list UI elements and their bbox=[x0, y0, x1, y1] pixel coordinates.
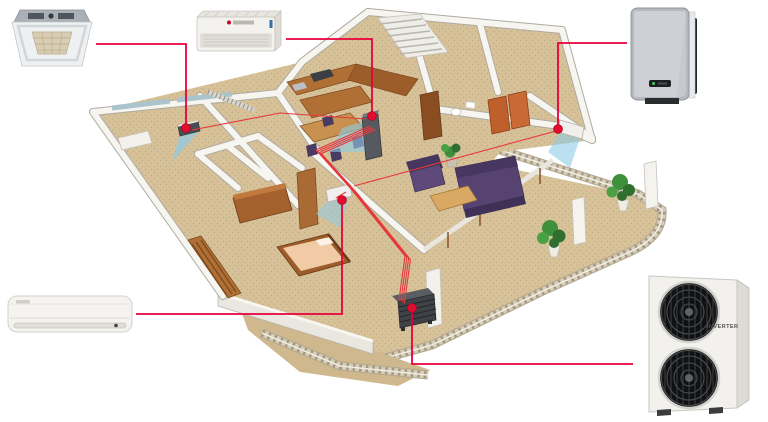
outdoor-unit-photo: INVERTER bbox=[633, 268, 755, 416]
door bbox=[297, 168, 318, 229]
connection-dot bbox=[368, 112, 377, 121]
fan-icon bbox=[659, 282, 719, 342]
brand-logo-dot bbox=[227, 21, 231, 25]
ceiling-cassette-photo bbox=[10, 8, 94, 70]
door bbox=[420, 91, 442, 140]
fan-icon bbox=[659, 348, 719, 408]
connection-dot bbox=[554, 125, 563, 134]
air-purifier-photo bbox=[627, 4, 703, 108]
wall-split-photo bbox=[6, 290, 136, 338]
connection-dot bbox=[182, 124, 191, 133]
inverter-label: INVERTER bbox=[707, 324, 738, 330]
console-unit-icon bbox=[197, 11, 281, 51]
terrace-pillar bbox=[572, 197, 586, 245]
connection-dot bbox=[408, 304, 417, 313]
console-unit-photo bbox=[193, 5, 285, 57]
terrace-pillar bbox=[644, 161, 658, 209]
wall-split-icon bbox=[8, 296, 132, 332]
air-purifier-icon bbox=[631, 8, 697, 104]
brand-logo bbox=[16, 300, 30, 304]
connection-dot bbox=[338, 196, 347, 205]
outdoor-unit-icon: INVERTER bbox=[649, 276, 749, 416]
ac-system-diagram: INVERTER bbox=[0, 0, 768, 422]
cassette-unit-icon bbox=[12, 10, 92, 66]
